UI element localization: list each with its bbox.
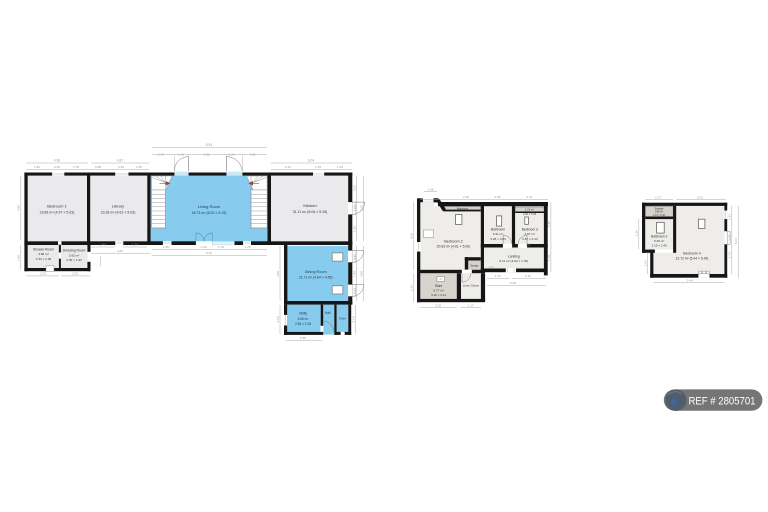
svg-text:Toilet: Toilet [339, 317, 346, 321]
svg-text:4.91 m²: 4.91 m² [493, 232, 504, 236]
svg-text:Bedroom 1: Bedroom 1 [47, 204, 67, 209]
svg-text:4.87: 4.87 [117, 249, 123, 253]
svg-text:4.87: 4.87 [117, 159, 124, 163]
svg-text:Bathroom 2: Bathroom 2 [651, 235, 668, 239]
svg-text:1.76: 1.76 [158, 153, 164, 157]
svg-text:1.91: 1.91 [337, 165, 343, 169]
svg-text:1.83: 1.83 [249, 153, 255, 157]
svg-text:3.87 m²: 3.87 m² [525, 232, 536, 236]
svg-text:1.29: 1.29 [315, 165, 321, 169]
svg-text:1.96: 1.96 [635, 230, 639, 236]
svg-text:31.11 m² (6.04 × 5.15): 31.11 m² (6.04 × 5.15) [293, 210, 327, 214]
svg-text:1.73: 1.73 [728, 252, 732, 258]
svg-text:2.36: 2.36 [17, 255, 21, 261]
svg-text:5.44: 5.44 [687, 278, 693, 282]
svg-text:4.99: 4.99 [17, 205, 21, 211]
svg-text:Bedroom 2: Bedroom 2 [444, 240, 463, 244]
svg-text:8.53: 8.53 [206, 143, 213, 147]
svg-text:2.40: 2.40 [547, 221, 551, 227]
svg-text:5.24: 5.24 [734, 238, 738, 244]
svg-text:3.28 × 3.03: 3.28 × 3.03 [490, 237, 506, 241]
svg-text:Wardrobe: Wardrobe [457, 207, 469, 211]
svg-text:2.11: 2.11 [410, 285, 414, 291]
svg-text:0.88: 0.88 [95, 165, 101, 169]
svg-text:Library: Library [112, 204, 124, 209]
svg-text:1.88: 1.88 [352, 271, 356, 277]
svg-text:2.17: 2.17 [655, 195, 661, 199]
svg-text:1.16: 1.16 [228, 153, 234, 157]
svg-text:0.96: 0.96 [118, 165, 124, 169]
svg-text:Living Room: Living Room [198, 204, 221, 209]
svg-text:1.10: 1.10 [489, 266, 494, 269]
svg-text:Linen Closet: Linen Closet [463, 283, 479, 287]
svg-text:1.93: 1.93 [132, 243, 138, 247]
svg-text:4.55: 4.55 [359, 271, 363, 277]
svg-text:8.92: 8.92 [206, 251, 212, 255]
svg-text:Hall: Hall [325, 311, 331, 315]
svg-text:Utility: Utility [299, 312, 308, 316]
svg-text:20.63 m² (4.61 × 5.00): 20.63 m² (4.61 × 5.00) [437, 245, 471, 249]
svg-text:48.73 m² (8.92 × 5.15): 48.73 m² (8.92 × 5.15) [192, 211, 227, 215]
svg-text:2.33: 2.33 [40, 272, 46, 276]
svg-text:1.82: 1.82 [34, 165, 40, 169]
svg-text:2.55: 2.55 [300, 336, 306, 340]
svg-text:5.00: 5.00 [410, 233, 414, 239]
svg-text:2.00: 2.00 [352, 185, 356, 191]
svg-text:Bathroom: Bathroom [491, 227, 506, 231]
svg-text:0.92: 0.92 [352, 254, 356, 260]
svg-text:3.16 × 2.11: 3.16 × 2.11 [431, 293, 446, 297]
svg-text:Store: Store [435, 284, 443, 288]
svg-text:2.05: 2.05 [72, 272, 78, 276]
svg-text:3.92 m²: 3.92 m² [69, 253, 80, 257]
svg-text:21.71 m² (4.84 × 4.55): 21.71 m² (4.84 × 4.55) [299, 275, 333, 279]
svg-text:8.11 m² (4.64 × 1.78): 8.11 m² (4.64 × 1.78) [499, 259, 528, 263]
svg-text:4.98: 4.98 [54, 159, 61, 163]
svg-text:23.83 m² (4.57 × 5.03): 23.83 m² (4.57 × 5.03) [40, 211, 75, 215]
svg-text:4.66 m²: 4.66 m² [38, 252, 49, 256]
svg-text:2.40: 2.40 [100, 243, 106, 247]
svg-text:0.93: 0.93 [352, 288, 356, 294]
svg-text:2.37: 2.37 [526, 195, 532, 199]
svg-text:2.20 × 0.46: 2.20 × 0.46 [523, 212, 537, 216]
svg-text:1.16: 1.16 [178, 153, 184, 157]
svg-text:Landing: Landing [508, 254, 520, 258]
svg-text:Shower Room: Shower Room [33, 247, 54, 251]
svg-text:1.76: 1.76 [218, 245, 224, 249]
svg-text:5.35 m²: 5.35 m² [654, 239, 664, 243]
svg-text:1.17: 1.17 [467, 303, 473, 307]
svg-text:22.72 m² (5.44 × 5.24): 22.72 m² (5.44 × 5.24) [676, 257, 709, 261]
svg-text:Dining Room: Dining Room [305, 270, 327, 274]
svg-text:1.08: 1.08 [427, 187, 433, 191]
svg-text:5.56 m²: 5.56 m² [298, 317, 309, 321]
svg-text:2.38: 2.38 [494, 195, 500, 199]
svg-text:1.05: 1.05 [352, 205, 356, 211]
svg-text:2.33 × 2.00: 2.33 × 2.00 [36, 257, 52, 261]
svg-text:2.18: 2.18 [351, 316, 355, 322]
svg-text:2.18: 2.18 [276, 316, 280, 322]
svg-text:2.05 × 1.93: 2.05 × 1.93 [66, 258, 82, 262]
svg-text:1.13 m²: 1.13 m² [525, 208, 534, 212]
svg-text:Dressing Room: Dressing Room [63, 249, 86, 253]
svg-text:3.15: 3.15 [435, 303, 441, 307]
svg-text:2.12: 2.12 [526, 244, 531, 247]
svg-text:6.77 m²: 6.77 m² [433, 288, 443, 292]
svg-text:3.37 × 2.43: 3.37 × 2.43 [522, 237, 538, 241]
svg-text:1.23: 1.23 [244, 245, 250, 249]
svg-text:1.93: 1.93 [728, 214, 732, 220]
svg-text:0.95: 0.95 [54, 165, 60, 169]
svg-text:2.28: 2.28 [463, 195, 469, 199]
svg-text:2.55 × 2.18: 2.55 × 2.18 [295, 322, 311, 326]
svg-text:1.20: 1.20 [644, 260, 648, 266]
svg-text:1.78: 1.78 [73, 165, 79, 169]
svg-text:1.78: 1.78 [547, 255, 551, 261]
svg-text:23.18 m² (4.61 × 5.03): 23.18 m² (4.61 × 5.03) [101, 211, 136, 215]
svg-text:3.01: 3.01 [697, 195, 703, 199]
svg-text:2.43: 2.43 [285, 165, 291, 169]
svg-text:1.76: 1.76 [495, 274, 501, 278]
svg-text:1.86: 1.86 [163, 245, 169, 249]
svg-text:2.13 × 0.46: 2.13 × 0.46 [653, 214, 666, 217]
svg-text:4.55: 4.55 [276, 271, 280, 277]
svg-text:5.15: 5.15 [359, 205, 363, 211]
svg-text:REF # 2805701: REF # 2805701 [689, 395, 756, 408]
svg-text:1.55: 1.55 [136, 165, 142, 169]
svg-text:Kitchen: Kitchen [303, 203, 316, 208]
svg-text:2.15 × 2.49: 2.15 × 2.49 [652, 243, 667, 247]
svg-text:5.48: 5.48 [510, 281, 516, 285]
svg-text:Storage: Storage [470, 265, 479, 268]
svg-text:1.02: 1.02 [728, 234, 732, 240]
svg-text:1.23: 1.23 [200, 245, 206, 249]
svg-text:Bedroom 4: Bedroom 4 [683, 251, 701, 255]
svg-text:6.04: 6.04 [308, 159, 315, 163]
svg-text:1.93: 1.93 [352, 226, 356, 232]
svg-text:2.11: 2.11 [525, 274, 531, 278]
svg-text:2.62: 2.62 [204, 153, 210, 157]
svg-text:Bedroom 3: Bedroom 3 [522, 227, 538, 231]
